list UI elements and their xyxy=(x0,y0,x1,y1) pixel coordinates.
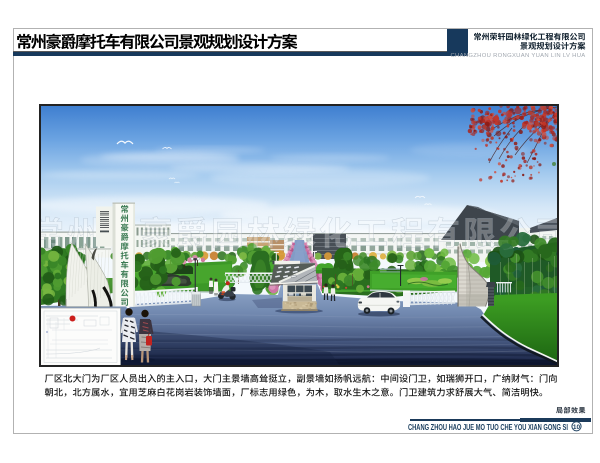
svg-text:10: 10 xyxy=(573,424,581,431)
svg-text:CHANG ZHOU HAO JUE MO TUO CHE: CHANG ZHOU HAO JUE MO TUO CHE YOU XIAN G… xyxy=(408,423,568,432)
